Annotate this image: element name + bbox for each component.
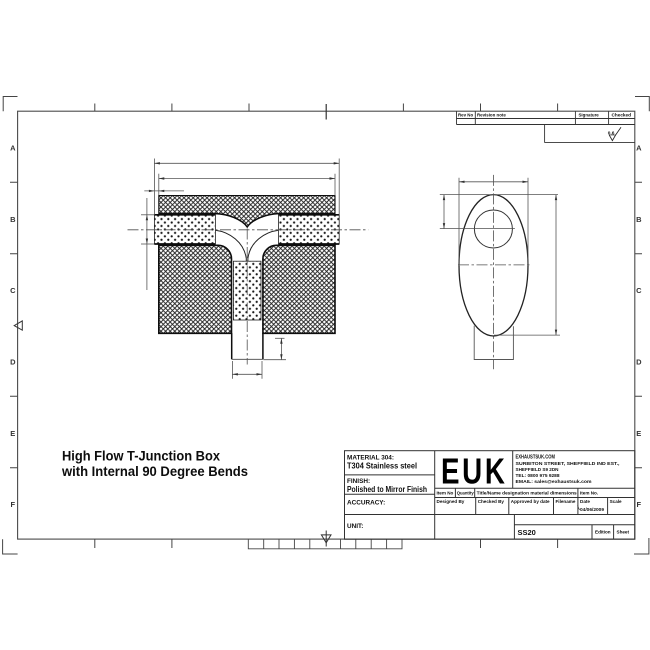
svg-text:C: C <box>636 286 642 295</box>
svg-text:UNIT:: UNIT: <box>347 523 363 530</box>
svg-text:FINISH:: FINISH: <box>347 478 370 485</box>
svg-text:EXHAUSTSUK.COM: EXHAUSTSUK.COM <box>516 455 556 461</box>
svg-text:Filename: Filename <box>556 499 576 504</box>
svg-text:Signature: Signature <box>579 112 600 117</box>
svg-text:Item No: Item No <box>437 491 454 496</box>
svg-text:F: F <box>11 500 16 509</box>
svg-text:Date: Date <box>580 499 590 504</box>
svg-text:EMAIL: sales@exhaustsuk.com: EMAIL: sales@exhaustsuk.com <box>516 479 592 484</box>
svg-text:Sheet: Sheet <box>617 530 630 535</box>
svg-text:SHEFFIELD S9 2DN: SHEFFIELD S9 2DN <box>516 467 560 472</box>
svg-text:SS20: SS20 <box>518 528 536 537</box>
svg-text:04/06/2009: 04/06/2009 <box>580 507 604 513</box>
svg-text:SURBITON STREET, SHEFFIELD IND: SURBITON STREET, SHEFFIELD IND EST., <box>516 461 620 466</box>
svg-text:0.6: 0.6 <box>608 130 615 136</box>
svg-text:C: C <box>10 286 16 295</box>
svg-text:Designed By: Designed By <box>437 499 465 504</box>
svg-text:E: E <box>10 429 15 438</box>
svg-text:Item No.: Item No. <box>580 491 598 496</box>
svg-text:Polished to Mirror Finish: Polished to Mirror Finish <box>347 485 427 494</box>
svg-text:B: B <box>636 215 642 224</box>
svg-text:Checked By: Checked By <box>478 499 505 504</box>
svg-text:Revision note: Revision note <box>477 112 506 117</box>
svg-text:High Flow T-Junction Box: High Flow T-Junction Box <box>62 449 220 465</box>
svg-text:Quantity: Quantity <box>457 491 474 496</box>
svg-text:ACCURACY:: ACCURACY: <box>347 500 385 507</box>
svg-text:Checked: Checked <box>612 112 632 117</box>
svg-text:T304 Stainless steel: T304 Stainless steel <box>347 462 417 471</box>
svg-text:F: F <box>637 500 642 509</box>
svg-text:TEL: 0800 975 9288: TEL: 0800 975 9288 <box>516 473 560 478</box>
svg-text:with Internal 90 Degree Bends: with Internal 90 Degree Bends <box>61 464 248 480</box>
svg-text:B: B <box>10 215 16 224</box>
svg-text:Edition: Edition <box>595 530 611 535</box>
svg-text:Rev No: Rev No <box>458 112 473 117</box>
svg-text:A: A <box>636 144 642 153</box>
svg-text:D: D <box>636 358 642 367</box>
svg-text:Scale: Scale <box>610 499 622 504</box>
svg-text:A: A <box>10 144 16 153</box>
svg-text:E: E <box>636 429 641 438</box>
svg-text:D: D <box>10 358 16 367</box>
svg-text:Approved by date: Approved by date <box>511 499 550 504</box>
svg-text:Title/Name designation materia: Title/Name designation material dimensio… <box>477 491 577 496</box>
svg-text:MATERIAL 304:: MATERIAL 304: <box>347 455 394 462</box>
svg-text:EUK: EUK <box>441 451 508 492</box>
